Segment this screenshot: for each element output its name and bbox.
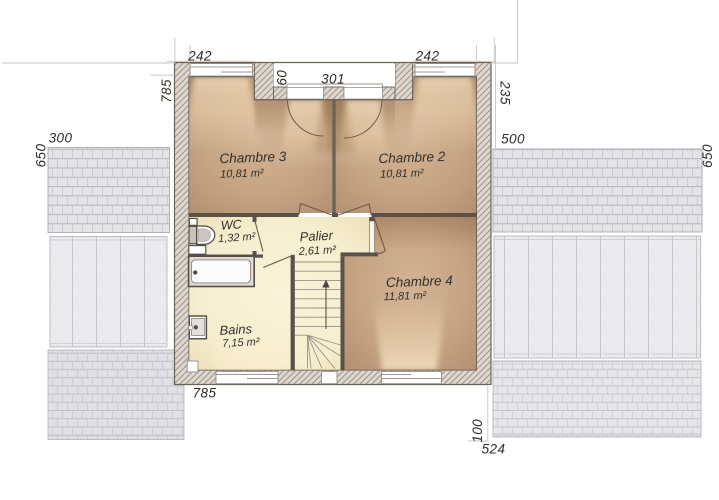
svg-text:650: 650: [34, 144, 49, 168]
svg-text:650: 650: [700, 144, 715, 168]
svg-text:Bains: Bains: [219, 321, 253, 338]
svg-text:524: 524: [482, 442, 506, 457]
svg-text:301: 301: [321, 72, 345, 87]
svg-text:11,81 m²: 11,81 m²: [383, 290, 426, 303]
svg-text:10,81 m²: 10,81 m²: [220, 167, 264, 181]
svg-text:2,61 m²: 2,61 m²: [297, 244, 336, 258]
svg-text:242: 242: [187, 49, 212, 64]
svg-text:500: 500: [501, 132, 525, 147]
svg-text:Palier: Palier: [299, 228, 334, 245]
svg-text:Chambre 2: Chambre 2: [378, 149, 446, 166]
svg-text:60: 60: [275, 70, 290, 86]
svg-text:300: 300: [49, 131, 73, 146]
svg-text:Chambre 3: Chambre 3: [219, 149, 287, 166]
svg-text:100: 100: [470, 419, 485, 443]
svg-text:235: 235: [498, 80, 513, 105]
svg-text:WC: WC: [220, 217, 243, 232]
svg-text:7,15 m²: 7,15 m²: [222, 336, 260, 350]
svg-text:10,81 m²: 10,81 m²: [380, 167, 424, 181]
svg-text:242: 242: [415, 49, 440, 64]
svg-text:785: 785: [159, 79, 174, 103]
svg-text:Chambre 4: Chambre 4: [386, 273, 453, 290]
svg-text:785: 785: [193, 386, 217, 401]
